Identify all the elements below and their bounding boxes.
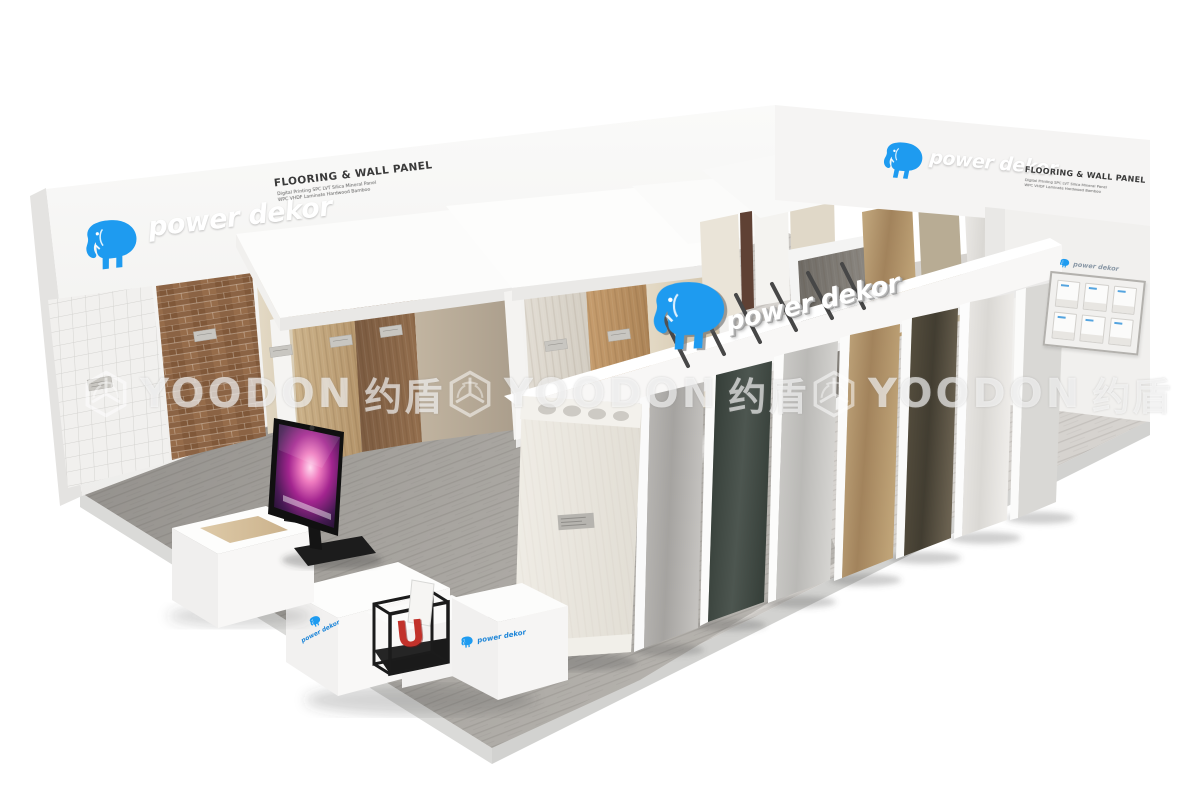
watermark: YOODON 约盾: [82, 366, 444, 421]
watermark-cjk: 约盾: [1092, 366, 1172, 421]
backroom-door-frame: [740, 211, 754, 311]
elephant-sign-3d: [646, 266, 737, 366]
watermark-text: YOODON: [868, 371, 1082, 417]
watermark: YOODON 约盾: [446, 366, 808, 421]
elephant-logo-icon: [1059, 257, 1071, 270]
watermark-cjk: 约盾: [728, 366, 808, 421]
watermark-text: YOODON: [140, 371, 354, 417]
sample-table: [168, 506, 314, 628]
panel-gray-marble: [644, 382, 704, 648]
brochure-pocket: [1111, 286, 1137, 315]
brochure-pocket: [1055, 280, 1081, 309]
brochure-pocket: [1108, 317, 1134, 346]
tv-camera: [310, 426, 315, 431]
yoodon-hexagon-icon: [810, 370, 858, 418]
door-sample-label: [558, 513, 595, 530]
yoodon-hexagon-icon: [446, 370, 494, 418]
panel-dark-rock: [904, 308, 958, 556]
brochure-pocket: [1083, 283, 1109, 312]
brochure-pocket: [1051, 312, 1077, 341]
brochure-grid: [1043, 271, 1146, 356]
panel-travertine: [842, 324, 900, 578]
watermark: YOODON 约盾: [810, 366, 1172, 421]
yoodon-hexagon-icon: [82, 370, 130, 418]
backroom-door: [754, 204, 790, 306]
brochure-pocket: [1080, 314, 1106, 343]
watermark-cjk: 约盾: [364, 366, 444, 421]
elephant-logo-icon: [78, 207, 147, 282]
cube-sample-letter: U: [394, 613, 427, 657]
brochure-rack: power dekor: [1043, 256, 1152, 356]
watermark-text: YOODON: [504, 371, 718, 417]
booth-render: YOODON 约盾 YOODON 约盾 YOODON 约盾 power deko…: [0, 0, 1184, 787]
elephant-logo-icon: [879, 134, 929, 188]
elephant-logo-icon: [459, 633, 475, 650]
